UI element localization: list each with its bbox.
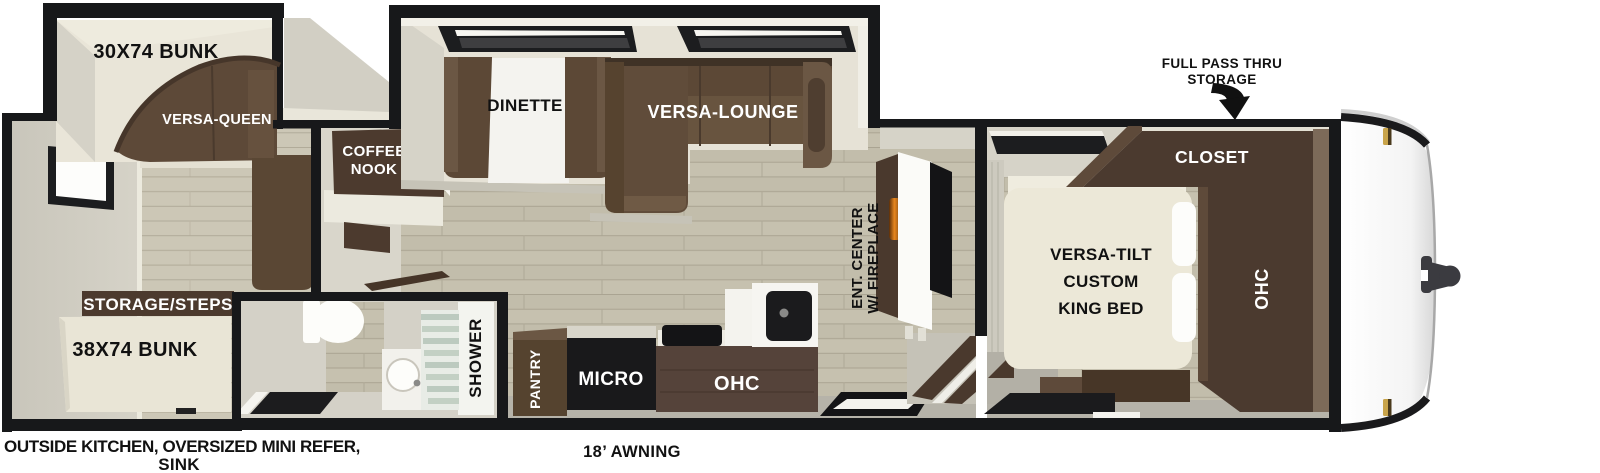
svg-text:CLOSET: CLOSET [1175, 147, 1249, 167]
svg-text:38X74 BUNK: 38X74 BUNK [72, 339, 197, 361]
svg-text:DINETTE: DINETTE [487, 96, 563, 115]
svg-text:30X74 BUNK: 30X74 BUNK [93, 41, 218, 63]
svg-text:MICRO: MICRO [578, 369, 643, 390]
svg-text:VERSA-LOUNGE: VERSA-LOUNGE [647, 102, 798, 122]
svg-text:FULL PASS THRU: FULL PASS THRU [1162, 56, 1283, 71]
svg-text:COFFEE: COFFEE [342, 143, 405, 160]
svg-text:OUTSIDE KITCHEN, OVERSIZED MIN: OUTSIDE KITCHEN, OVERSIZED MINI REFER, [4, 437, 360, 456]
svg-text:W/ FIREPLACE: W/ FIREPLACE [865, 202, 882, 313]
svg-text:OHC: OHC [1252, 268, 1272, 310]
svg-text:SINK: SINK [158, 455, 200, 473]
svg-text:OHC: OHC [714, 373, 760, 395]
svg-text:18’ AWNING: 18’ AWNING [583, 443, 681, 461]
svg-text:CUSTOM: CUSTOM [1063, 272, 1138, 291]
svg-text:NOOK: NOOK [351, 161, 398, 178]
svg-text:PANTRY: PANTRY [527, 349, 543, 409]
svg-text:VERSA-TILT: VERSA-TILT [1050, 245, 1152, 264]
svg-text:STORAGE/STEPS: STORAGE/STEPS [83, 295, 232, 314]
svg-text:ENT. CENTER: ENT. CENTER [849, 207, 866, 309]
svg-text:VERSA-QUEEN: VERSA-QUEEN [162, 112, 272, 128]
svg-text:KING BED: KING BED [1058, 299, 1144, 318]
svg-text:SHOWER: SHOWER [466, 318, 485, 398]
